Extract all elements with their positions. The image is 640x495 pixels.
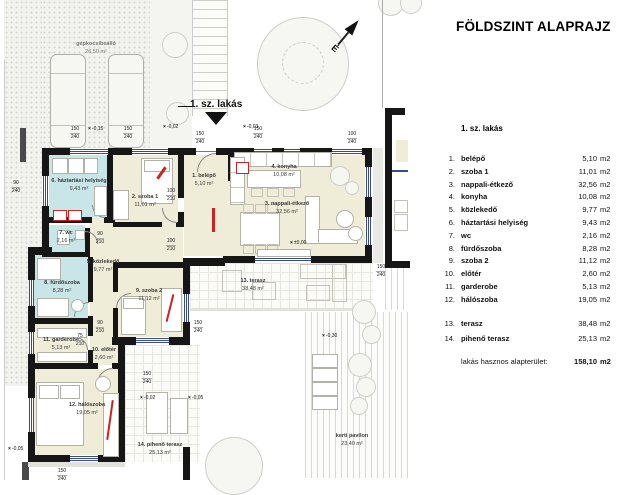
- room-list-row: 9.szoba 211,12m2: [442, 256, 612, 269]
- sliding-door: [255, 258, 311, 261]
- window: [366, 217, 371, 245]
- dimension-label: 100210: [166, 188, 176, 202]
- room-list-row: 5.közlekedő9,77m2: [442, 205, 612, 218]
- wall-segment: [362, 148, 372, 155]
- plant: [345, 181, 359, 195]
- window: [29, 332, 34, 354]
- fence-segment: [20, 128, 26, 162]
- room-label: 4. konyha10,08 m²: [271, 163, 296, 180]
- bush: [162, 32, 188, 58]
- pergola-shadow: [190, 308, 375, 311]
- room-list: 1.belépő5,10m2 2.szoba 111,01m2 3.nappal…: [442, 154, 612, 308]
- flower: [356, 377, 376, 397]
- room-label: 1. belépő5,10 m²: [192, 172, 216, 189]
- elevation-marker: ×±0,00: [290, 240, 306, 246]
- fixture: [394, 200, 408, 213]
- room-label: 14. pihenő terasz25,13 m²: [138, 441, 183, 458]
- dimension-label: 75210: [76, 333, 84, 347]
- adjacent-terrace: [385, 268, 407, 310]
- down-triangle-icon: [205, 112, 227, 125]
- outdoor-table: [306, 285, 330, 301]
- unit-header: 1. sz. lakás: [461, 124, 503, 133]
- wall-segment: [42, 217, 92, 223]
- armchair: [348, 226, 363, 241]
- closet-rail: [37, 352, 87, 362]
- elevation-marker: ×-0,03: [243, 124, 258, 130]
- dimension-label: 150240: [70, 126, 80, 140]
- wall-segment: [365, 155, 372, 167]
- dimension-label: 150240: [142, 371, 152, 385]
- wall-segment: [42, 155, 49, 176]
- wall-segment: [178, 212, 184, 222]
- dimension-label: 150240: [123, 126, 133, 140]
- stool: [267, 188, 279, 197]
- room-list-row: 4.konyha10,08m2: [442, 192, 612, 205]
- pillow: [60, 385, 80, 399]
- elevation-marker: ×-0,02: [140, 395, 155, 401]
- tree-crown: [282, 42, 324, 84]
- window: [184, 294, 189, 322]
- window: [29, 398, 34, 432]
- tv-bench: [257, 249, 311, 257]
- terrace-list: 13.terasz38,48m2 14.pihenő terasz25,13m2: [442, 319, 612, 349]
- north-label: É: [329, 43, 340, 55]
- page-title: FÖLDSZINT ALAPRAJZ: [456, 19, 611, 34]
- total-area-unit: m2: [600, 357, 612, 366]
- lounger: [312, 382, 338, 396]
- elevation-marker: ×-0,30: [322, 333, 337, 339]
- wall-segment: [28, 255, 35, 280]
- dimension-label: 90210: [96, 320, 104, 334]
- wall-segment: [42, 148, 70, 155]
- room-label: 6. háztartási helyiség9,43 m²: [51, 177, 106, 194]
- dimension-label: 100210: [166, 238, 176, 252]
- room-label: 2. szoba 111,01 m²: [132, 193, 158, 210]
- window: [332, 149, 362, 154]
- room-label: 13. terasz38,48 m²: [240, 277, 265, 294]
- stool: [283, 188, 295, 197]
- radiator-marker: [212, 208, 215, 232]
- wall-segment: [178, 155, 184, 198]
- stool: [251, 188, 263, 197]
- room-label: 8. fürdőszoba8,28 m²: [44, 279, 80, 296]
- wall-segment: [28, 363, 98, 369]
- room-list-row: 2.szoba 111,01m2: [442, 167, 612, 180]
- room-list-row: 1.belépő5,10m2: [442, 154, 612, 167]
- wall-segment: [113, 308, 118, 337]
- wall-segment: [385, 261, 410, 268]
- wall-segment: [385, 108, 392, 268]
- wall-segment: [169, 337, 190, 345]
- armchair: [336, 210, 354, 228]
- outdoor-chair: [222, 270, 242, 292]
- north-arrow-line: [338, 32, 349, 45]
- window: [43, 176, 48, 206]
- room-list-row: 7.wc2,16m2: [442, 231, 612, 244]
- wall-segment: [108, 148, 132, 155]
- room-list-row: 14.pihenő terasz25,13m2: [442, 334, 612, 349]
- shower: [37, 258, 61, 280]
- wall-segment: [28, 318, 90, 324]
- wall-segment: [113, 222, 162, 227]
- bathtub: [37, 298, 69, 317]
- fixture: [394, 214, 408, 231]
- wall-segment: [168, 148, 196, 155]
- total-area-value: 158,10: [574, 357, 597, 366]
- tree: [400, 0, 422, 14]
- room-list-row: 3.nappali-étkező32,56m2: [442, 180, 612, 193]
- pillow: [144, 160, 170, 172]
- washer: [52, 158, 68, 174]
- dimension-label: 90240: [12, 180, 20, 194]
- room-label: 11. garderobe5,13 m²: [43, 336, 79, 353]
- window: [366, 167, 371, 197]
- unit-pointer: 1. sz. lakás: [190, 99, 242, 125]
- window: [392, 170, 408, 172]
- wall-segment: [113, 262, 190, 268]
- dimension-label: 90210: [96, 231, 104, 245]
- flower: [350, 397, 368, 415]
- armchair: [95, 376, 111, 392]
- flower: [352, 300, 376, 324]
- room-label: 10. előtér2,60 m²: [92, 346, 116, 363]
- plot-line: [382, 0, 383, 108]
- wall-segment: [88, 324, 93, 336]
- wall-segment: [28, 354, 35, 398]
- room-label: 7. wc2,16 m²: [57, 229, 76, 246]
- basin: [71, 299, 84, 312]
- side-path: [373, 148, 383, 263]
- room-label: 5. közlekedő9,77 m²: [87, 258, 120, 275]
- hand-basin: [75, 230, 85, 240]
- wall-segment: [112, 337, 136, 345]
- total-area-label: lakás hasznos alapterület:: [461, 357, 548, 366]
- room-label: 3. nappali-étkező32,56 m²: [265, 200, 309, 217]
- wall-segment: [183, 266, 190, 294]
- wall-segment: [311, 256, 372, 263]
- room-list-row: 11.garderobe5,13m2: [442, 282, 612, 295]
- room-list-row: 10.előtér2,60m2: [442, 269, 612, 282]
- dining-table: [240, 212, 280, 246]
- lounger: [312, 368, 338, 382]
- unit-pointer-label: 1. sz. lakás: [190, 99, 242, 110]
- wall-shadow: [28, 462, 125, 467]
- dimension-label: 150240: [193, 320, 203, 334]
- window: [132, 149, 168, 154]
- elevation-marker: ×-0,15: [88, 126, 103, 132]
- desk: [113, 190, 129, 220]
- site-label: gépkocsibeálló26,50 m²: [76, 40, 116, 57]
- counter: [84, 158, 98, 174]
- flower: [348, 353, 372, 377]
- dimension-label: 100240: [347, 131, 357, 145]
- site-label: kerti pavilon23,40 m²: [336, 432, 368, 449]
- dimension-label: 150240: [376, 264, 386, 278]
- room-list-row: 13.terasz38,48m2: [442, 319, 612, 334]
- pavilion-post: [183, 447, 190, 480]
- wall-segment: [118, 390, 125, 462]
- floorplan-sheet: É 1. sz. lakás: [0, 0, 640, 480]
- room-list-row: 12.hálószoba19,05m2: [442, 295, 612, 308]
- elevation-marker: ×-0,05: [8, 446, 23, 452]
- room-label: 12. hálószoba19,05 m²: [69, 401, 105, 418]
- window: [136, 338, 169, 343]
- washer-marker: [53, 210, 67, 221]
- wall-segment: [42, 206, 49, 252]
- elevation-marker: ×-0,05: [188, 395, 203, 401]
- car: [50, 54, 86, 148]
- entry-threshold: [196, 151, 216, 152]
- sink-unit: [68, 158, 84, 174]
- wall-segment: [176, 222, 184, 227]
- room-label: 9. szoba 211,12 m²: [136, 287, 162, 304]
- chair: [243, 204, 254, 214]
- boiler-marker: [236, 162, 249, 174]
- outdoor-sofa: [332, 264, 347, 302]
- room-list-row: 6.háztartási helyiség9,43m2: [442, 218, 612, 231]
- room-list-row: 8.fürdőszoba8,28m2: [442, 244, 612, 257]
- pillow: [39, 385, 59, 399]
- wall-segment: [223, 256, 255, 263]
- dimension-label: 150240: [195, 131, 205, 145]
- wall-segment: [28, 455, 70, 462]
- lounger: [312, 396, 338, 410]
- lounger: [170, 398, 188, 434]
- chair: [243, 244, 254, 254]
- wall-segment: [365, 197, 372, 217]
- total-area-row: lakás hasznos alapterület: 158,10 m2: [442, 357, 612, 366]
- window: [70, 456, 98, 461]
- window: [29, 280, 34, 306]
- dryer-marker: [68, 210, 82, 221]
- elevation-marker: ×-0,02: [163, 124, 178, 130]
- wall-segment: [42, 252, 90, 257]
- flower: [362, 325, 381, 344]
- window: [70, 149, 108, 154]
- adjacent-unit-floor: [396, 140, 408, 162]
- lounger: [312, 354, 338, 368]
